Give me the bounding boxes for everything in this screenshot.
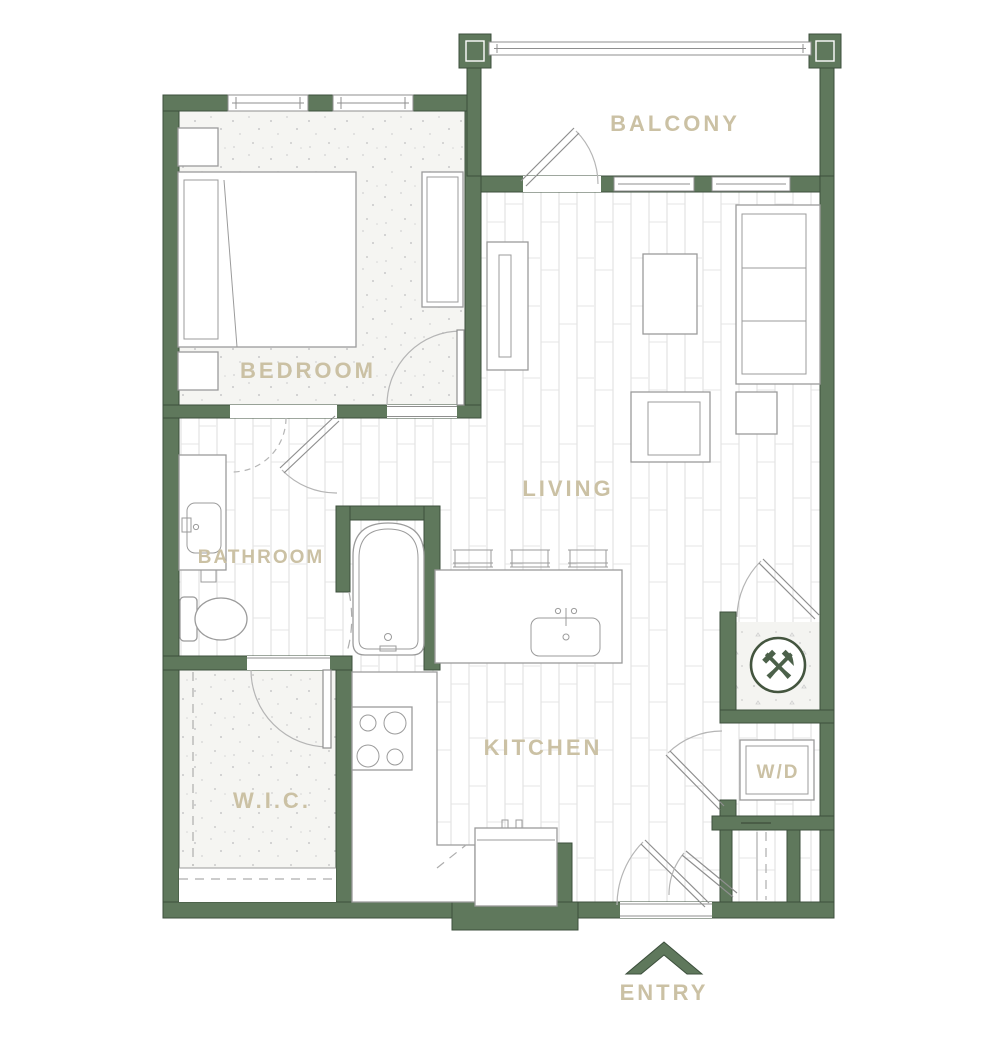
bedroom-label: BEDROOM: [240, 358, 376, 383]
kitchen-island: [435, 570, 622, 663]
entry-label: ENTRY: [620, 980, 709, 1005]
wall-utility-left: [720, 612, 736, 723]
living-window-2: [712, 177, 790, 191]
balcony-post-left: [459, 34, 491, 68]
toilet: [180, 597, 247, 641]
entry-marker: ENTRY: [620, 942, 709, 1005]
wall-right: [820, 176, 834, 902]
nightstand-bottom: [178, 352, 218, 390]
coffee-table: [643, 254, 697, 334]
living-window-1: [614, 177, 694, 191]
washer-dryer-label: W/D: [757, 762, 800, 783]
wic-label: W.I.C.: [233, 788, 311, 813]
bathroom-label: BATHROOM: [198, 547, 324, 568]
wall-bedroom-top: [163, 95, 481, 111]
floor-plan: ⚒ BALCONY BEDROOM LIVING BATHROOM W.I.C.…: [0, 0, 1000, 1040]
side-table: [736, 392, 777, 434]
balcony-label: BALCONY: [610, 111, 740, 136]
wall-closet-divider: [787, 830, 800, 902]
wall-left: [163, 95, 179, 918]
bathtub: [353, 523, 424, 655]
entry-door-opening: [620, 902, 712, 918]
balcony-post-right: [809, 34, 841, 68]
wall-utility-bottom: [720, 710, 834, 723]
living-label: LIVING: [522, 476, 613, 501]
fridge: [475, 820, 557, 906]
bedroom-window-1: [228, 95, 308, 111]
utility-closet: ⚒: [751, 638, 805, 692]
wall-kitchen-entry: [557, 843, 572, 902]
tv-console: [487, 242, 528, 370]
wall-balcony-right: [820, 68, 834, 176]
bedroom-door-opening: [387, 405, 457, 418]
end-table: [631, 392, 710, 462]
kitchen-label: KITCHEN: [484, 735, 603, 760]
balcony-railing: [489, 42, 811, 55]
wic-floor: [179, 670, 336, 902]
wall-closet-top: [712, 816, 834, 830]
entry-arrow-icon: [626, 942, 702, 974]
tools-icon: ⚒: [760, 643, 796, 689]
balcony-door-opening: [523, 176, 601, 192]
sofa: [736, 205, 820, 384]
dresser: [422, 172, 463, 307]
cooktop: [352, 707, 412, 770]
nightstand-top: [178, 128, 218, 166]
wall-tub-left-stub: [336, 506, 350, 592]
floor-plan-svg: ⚒ BALCONY BEDROOM LIVING BATHROOM W.I.C.…: [0, 0, 1000, 1040]
bed: [178, 172, 356, 347]
bedroom-window-2: [333, 95, 413, 111]
wall-wic-right: [336, 670, 352, 902]
bathroom-opening: [230, 405, 337, 418]
wic-door-opening: [247, 656, 330, 670]
